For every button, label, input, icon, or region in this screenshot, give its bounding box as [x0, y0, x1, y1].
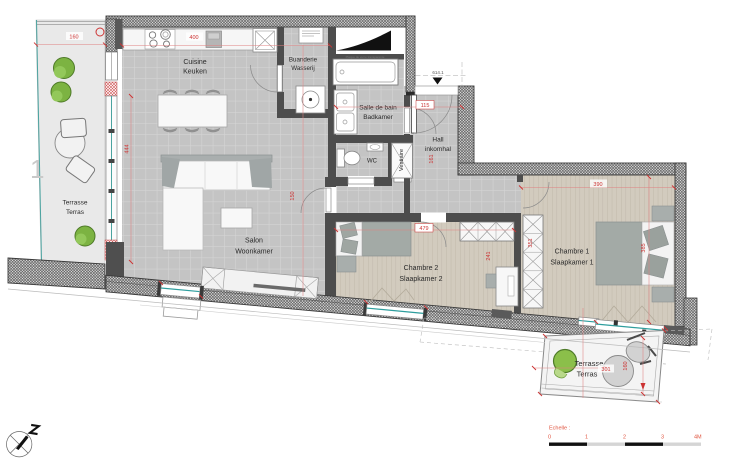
- svg-text:WC: WC: [367, 159, 378, 165]
- svg-text:385: 385: [641, 243, 647, 252]
- svg-text:Echelle :: Echelle :: [549, 426, 571, 432]
- svg-text:Terras: Terras: [577, 370, 598, 379]
- svg-text:115: 115: [421, 103, 430, 109]
- svg-text:2: 2: [623, 435, 626, 441]
- svg-text:614.1: 614.1: [432, 70, 444, 75]
- svg-text:150: 150: [290, 191, 296, 200]
- svg-text:Slaapkamer 1: Slaapkamer 1: [550, 260, 593, 267]
- svg-text:Vestiaire: Vestiaire: [399, 149, 405, 171]
- svg-text:1: 1: [585, 435, 588, 441]
- svg-text:Plaque de verre transparente: Plaque de verre transparente: [346, 55, 385, 59]
- svg-text:479: 479: [419, 226, 428, 232]
- svg-text:Salon: Salon: [245, 238, 263, 245]
- svg-text:Chambre 2: Chambre 2: [404, 265, 439, 272]
- svg-text:301: 301: [601, 367, 610, 373]
- svg-text:Badkamer: Badkamer: [363, 114, 393, 121]
- svg-text:160: 160: [623, 361, 629, 370]
- svg-text:351: 351: [528, 238, 534, 247]
- svg-text:Cuisine: Cuisine: [183, 59, 206, 66]
- svg-text:Terras: Terras: [66, 209, 85, 216]
- svg-text:241: 241: [486, 251, 492, 260]
- svg-text:0: 0: [548, 435, 551, 441]
- svg-text:Keuken: Keuken: [183, 69, 207, 76]
- svg-text:Slaapkamer 2: Slaapkamer 2: [399, 276, 442, 283]
- svg-text:444: 444: [125, 144, 131, 153]
- svg-text:160: 160: [69, 35, 78, 41]
- svg-text:3: 3: [661, 435, 664, 441]
- svg-text:161: 161: [429, 154, 435, 163]
- svg-text:1: 1: [30, 154, 44, 184]
- svg-text:4M: 4M: [694, 435, 702, 441]
- svg-text:400: 400: [189, 35, 198, 41]
- svg-text:Woonkamer: Woonkamer: [235, 249, 273, 256]
- svg-text:inkomhal: inkomhal: [425, 146, 452, 153]
- svg-text:Salle de bain: Salle de bain: [359, 105, 397, 112]
- svg-text:Chambre 1: Chambre 1: [555, 249, 590, 256]
- svg-text:390: 390: [593, 182, 602, 188]
- svg-text:Hall: Hall: [432, 137, 444, 144]
- svg-text:Terrasse: Terrasse: [63, 200, 88, 207]
